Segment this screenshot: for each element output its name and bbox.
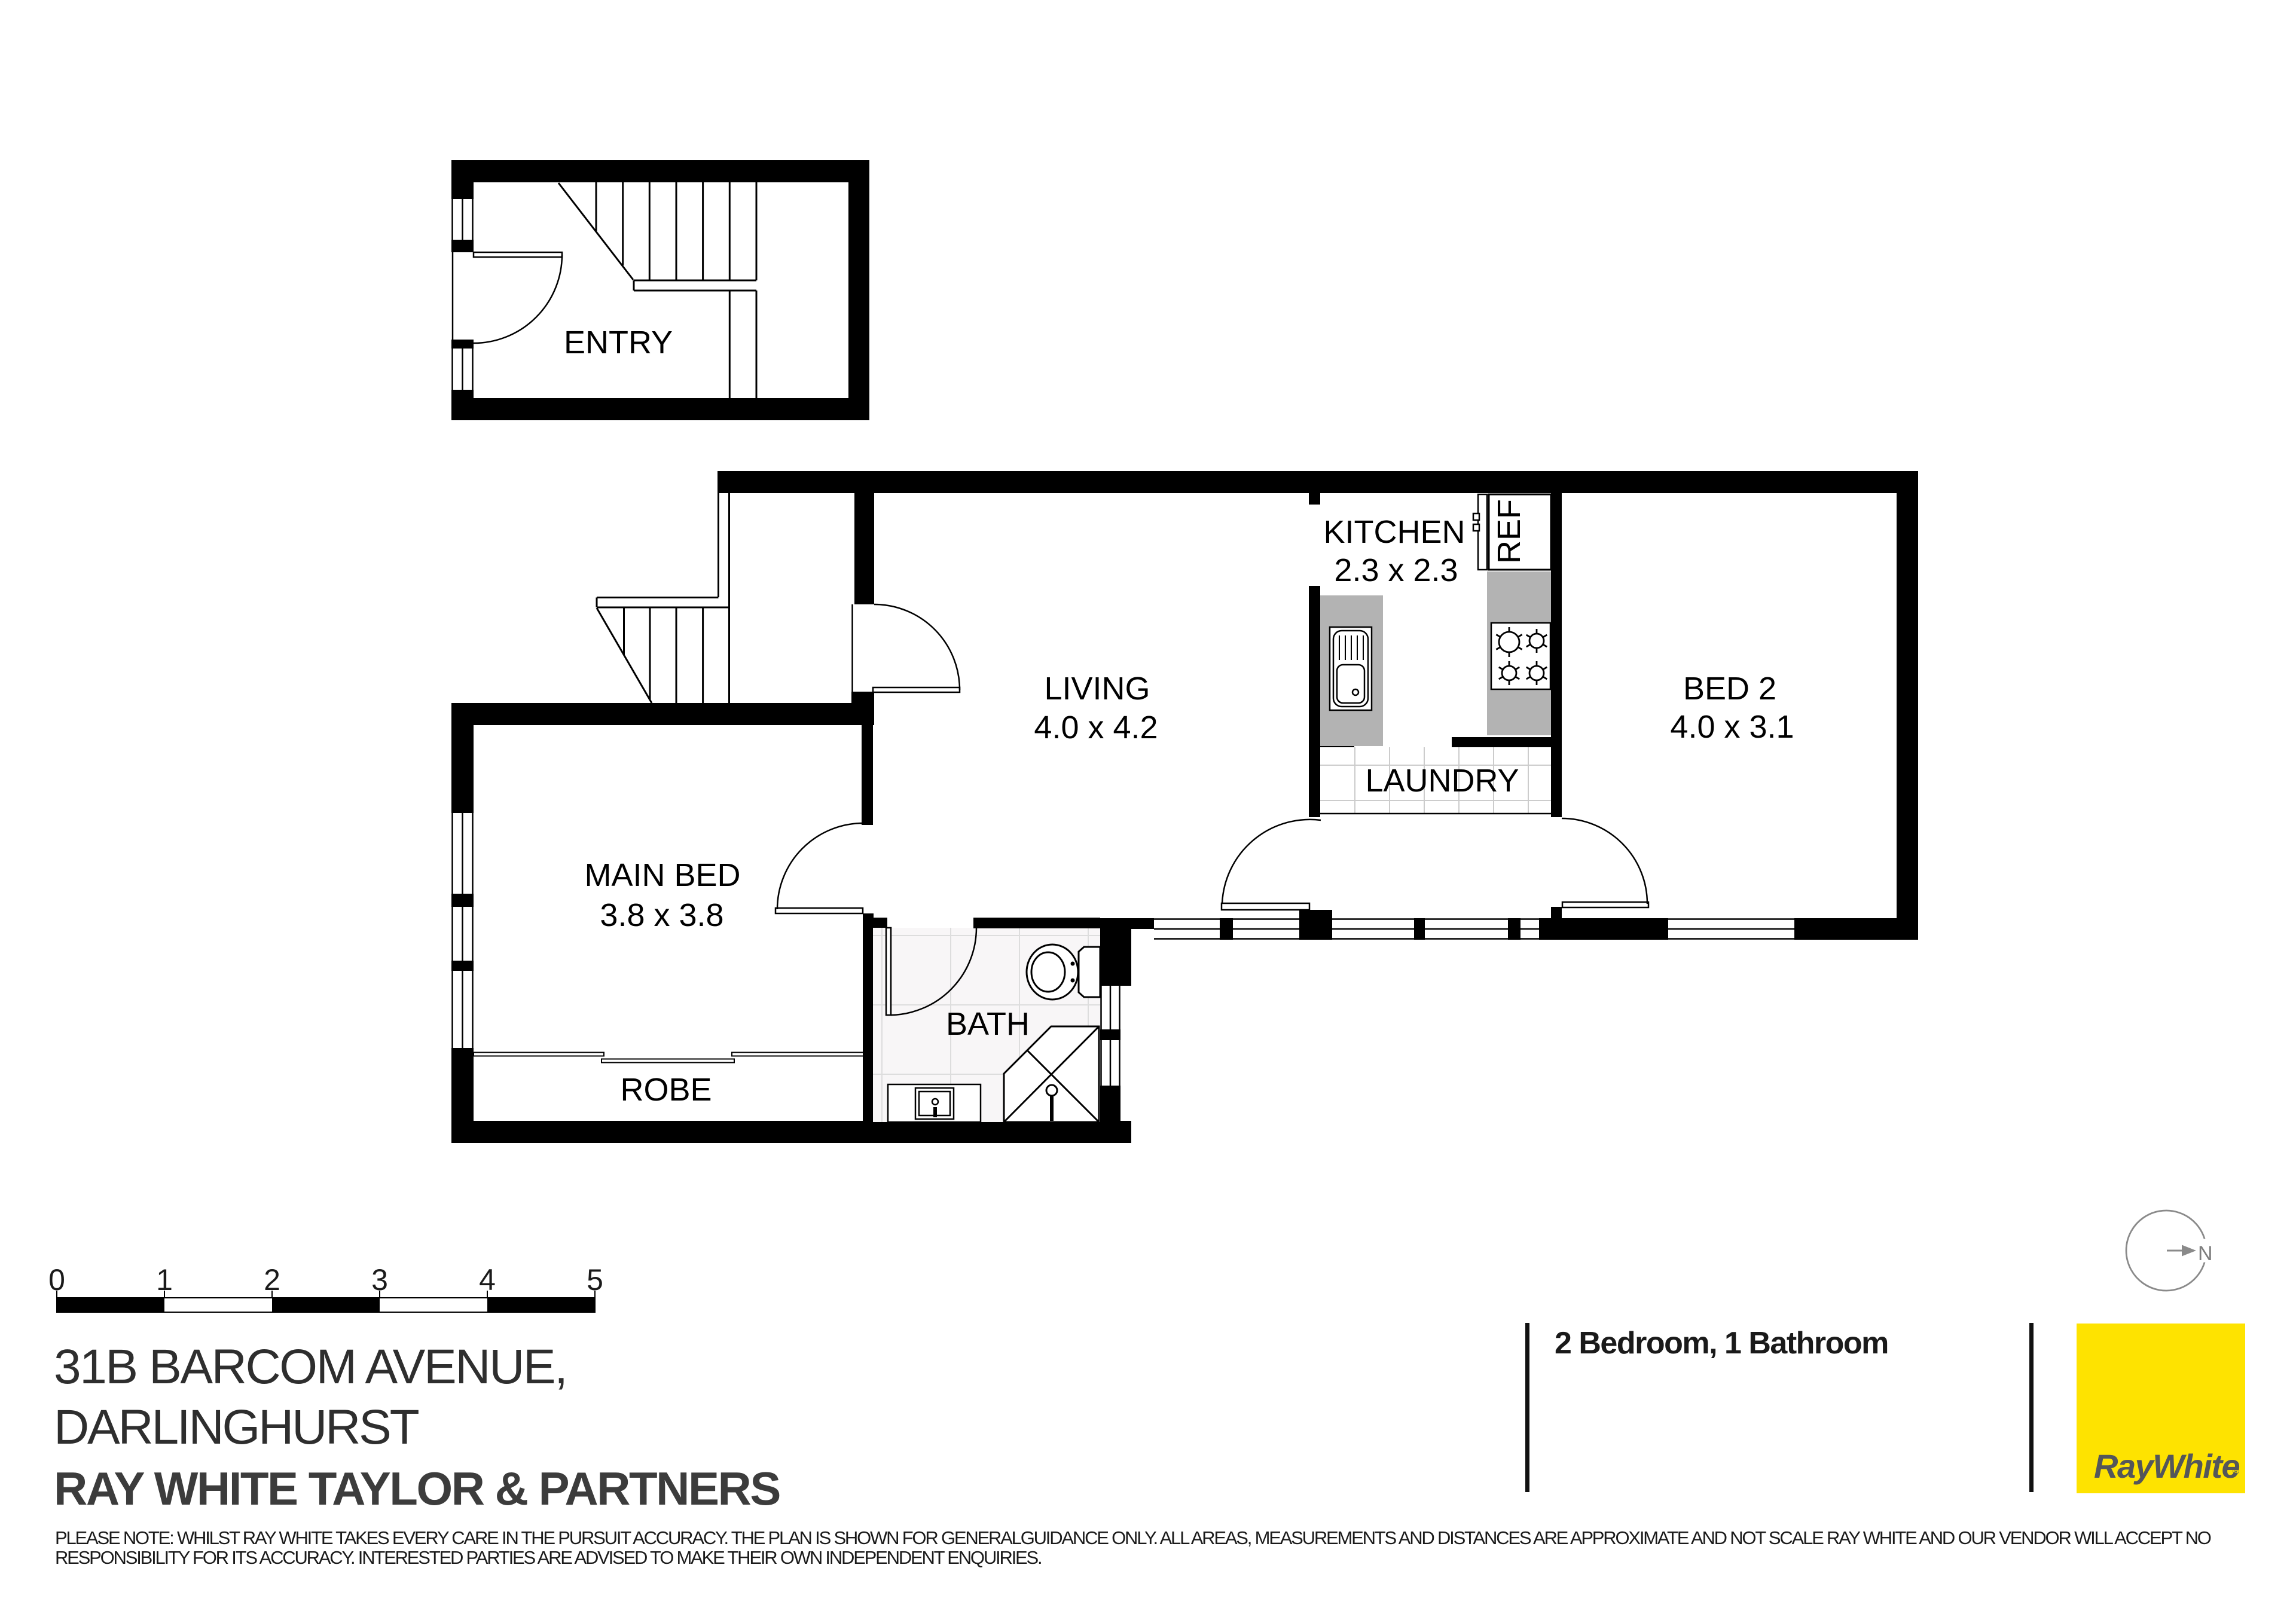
svg-text:RAY WHITE TAYLOR & PARTNERS: RAY WHITE TAYLOR & PARTNERS bbox=[54, 1462, 780, 1515]
svg-text:KITCHEN: KITCHEN bbox=[1323, 514, 1465, 550]
svg-text:MAIN BED: MAIN BED bbox=[584, 857, 740, 893]
svg-text:BATH: BATH bbox=[946, 1006, 1030, 1042]
svg-text:4.0 x 4.2: 4.0 x 4.2 bbox=[1034, 710, 1158, 745]
svg-text:ENTRY: ENTRY bbox=[564, 325, 673, 360]
svg-text:®: ® bbox=[2233, 1466, 2239, 1477]
svg-text:BED 2: BED 2 bbox=[1683, 671, 1776, 707]
svg-text:4.0 x 3.1: 4.0 x 3.1 bbox=[1670, 709, 1794, 745]
svg-text:LIVING: LIVING bbox=[1044, 671, 1150, 707]
svg-text:REF: REF bbox=[1491, 499, 1527, 564]
svg-text:ROBE: ROBE bbox=[620, 1072, 712, 1108]
svg-text:31B BARCOM AVENUE,: 31B BARCOM AVENUE, bbox=[54, 1340, 567, 1394]
svg-text:3.8 x 3.8: 3.8 x 3.8 bbox=[600, 897, 723, 933]
svg-text:N: N bbox=[2198, 1242, 2213, 1265]
svg-text:2.3 x 2.3: 2.3 x 2.3 bbox=[1334, 552, 1458, 588]
svg-text:2 Bedroom, 1 Bathroom: 2 Bedroom, 1 Bathroom bbox=[1555, 1326, 1888, 1361]
svg-text:LAUNDRY: LAUNDRY bbox=[1365, 763, 1519, 799]
svg-text:RayWhite: RayWhite bbox=[2094, 1447, 2240, 1485]
svg-text:DARLINGHURST: DARLINGHURST bbox=[54, 1400, 419, 1454]
svg-text:RESPONSIBILITY FOR ITS ACCURAC: RESPONSIBILITY FOR ITS ACCURACY. INTERES… bbox=[55, 1547, 1041, 1568]
svg-text:PLEASE NOTE: WHILST RAY WHITE: PLEASE NOTE: WHILST RAY WHITE TAKES EVER… bbox=[55, 1527, 2211, 1548]
